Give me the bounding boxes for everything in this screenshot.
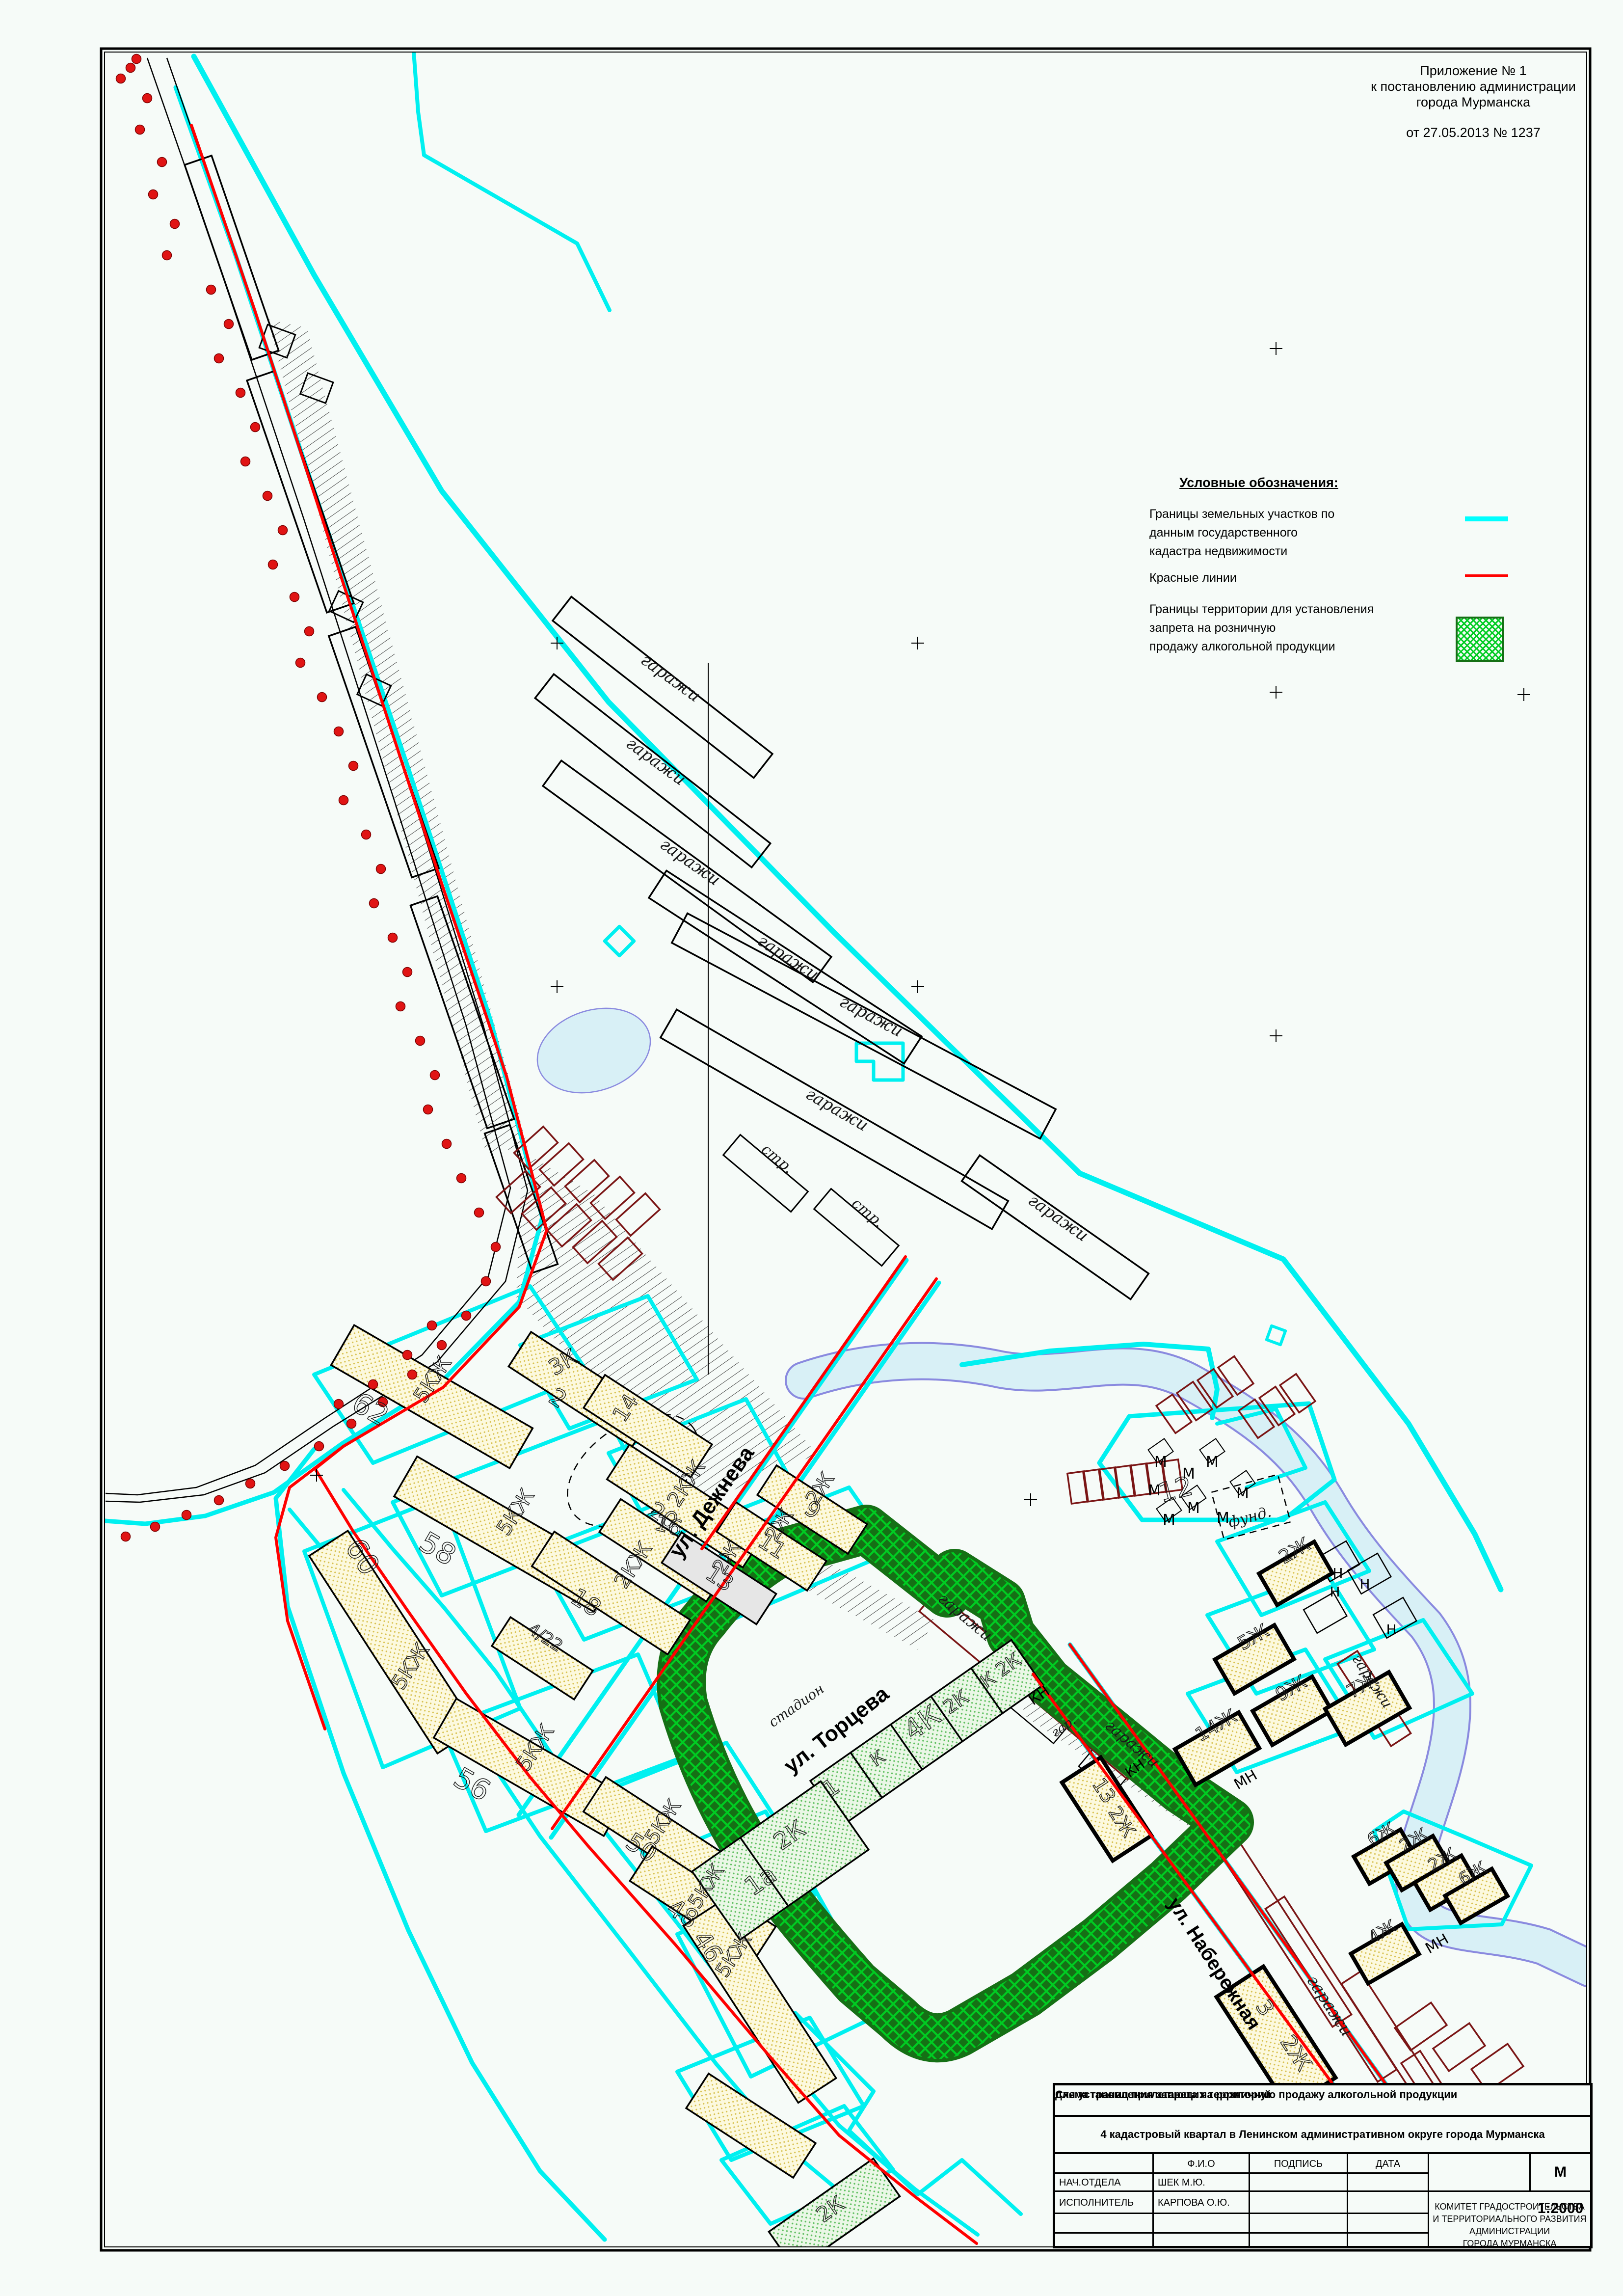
row1-role: НАЧ.ОТДЕЛА [1055, 2174, 1154, 2192]
committee-name: КОМИТЕТ ГРАДОСТРОИТЕЛЬСТВА И ТЕРРИТОРИАЛ… [1429, 2192, 1590, 2248]
appendix-line2: к постановлению администрации [1346, 79, 1601, 94]
row1-sign [1250, 2174, 1348, 2192]
title-block: Схема границ прилегающих территорий для … [1053, 2083, 1593, 2248]
svg-text:гаражи: гаражи [656, 834, 724, 890]
svg-text:ул. Набережная: ул. Набережная [1164, 1893, 1265, 2033]
svg-text:гаражи: гаражи [802, 1084, 872, 1135]
pond [526, 995, 661, 1107]
legend-title: Условные обозначения: [1153, 475, 1364, 490]
drawing-sheet: ул. Дежневаул. Торцеваул. Набережная625К… [0, 0, 1623, 2296]
row4-date [1348, 2234, 1429, 2248]
appendix-note: Приложение № 1 к постановлению администр… [1346, 63, 1601, 140]
row3-name [1154, 2214, 1250, 2234]
title-line2: для установления запрета на розничную пр… [1055, 2088, 1457, 2101]
row2-name: КАРПОВА О.Ю. [1154, 2192, 1250, 2214]
row2-role: ИСПОЛНИТЕЛЬ [1055, 2192, 1154, 2214]
legend-swatch-cadastre-line [1465, 516, 1508, 521]
svg-text:Н: Н [1332, 1565, 1343, 1581]
svg-text:М: М [1163, 1512, 1175, 1529]
appendix-date: от 27.05.2013 № 1237 [1346, 125, 1601, 140]
legend-item-ban: Границы территории для установления запр… [1149, 600, 1444, 656]
svg-text:фунд.: фунд. [1226, 1503, 1273, 1531]
svg-text:М: М [1154, 1454, 1167, 1471]
cell-empty-hd [1055, 2154, 1154, 2174]
svg-text:Н: Н [1359, 1576, 1370, 1592]
svg-text:гаражи: гаражи [622, 733, 690, 790]
svg-text:стр.: стр. [758, 1141, 797, 1177]
svg-text:М: М [1206, 1454, 1219, 1471]
row4-name [1154, 2234, 1250, 2248]
legend-swatch-red-line [1465, 574, 1508, 577]
row1-date [1348, 2174, 1429, 2192]
row4-role [1055, 2234, 1154, 2248]
col-sign: ПОДПИСЬ [1250, 2154, 1348, 2174]
svg-text:М: М [1236, 1485, 1249, 1502]
legend-item-redlines: Красные линии [1149, 568, 1444, 587]
svg-text:Н: Н [1330, 1584, 1340, 1600]
appendix-line1: Приложение № 1 [1346, 63, 1601, 79]
row3-role [1055, 2214, 1154, 2234]
svg-text:гаражи: гаражи [754, 931, 822, 985]
row2-date [1348, 2192, 1429, 2214]
svg-text:гаражи: гаражи [836, 992, 906, 1041]
row3-sign [1250, 2214, 1348, 2234]
svg-text:гаражи: гаражи [1024, 1190, 1092, 1245]
trees [116, 54, 501, 1541]
col-fio: Ф.И.О [1154, 2154, 1250, 2174]
cell-blank [1429, 2154, 1531, 2192]
svg-text:стр.: стр. [849, 1195, 887, 1231]
svg-text:М: М [1187, 1500, 1200, 1517]
svg-text:Н: Н [1386, 1621, 1396, 1638]
svg-text:М: М [1148, 1482, 1161, 1499]
svg-text:гаражи: гаражи [637, 650, 704, 706]
row3-date [1348, 2214, 1429, 2234]
row2-sign [1250, 2192, 1348, 2214]
title-block-subtitle: 4 кадастровый квартал в Ленинском админи… [1055, 2117, 1590, 2154]
svg-text:стадион: стадион [766, 1680, 827, 1730]
title-block-title: Схема границ прилегающих территорий для … [1055, 2085, 1590, 2117]
legend-swatch-ban-hatch [1456, 617, 1504, 662]
svg-text:М: М [1182, 1465, 1195, 1483]
appendix-line3: города Мурманска [1346, 94, 1601, 110]
map-scale: М 1:2000 [1531, 2154, 1590, 2192]
row4-sign [1250, 2234, 1348, 2248]
cadastral-map: ул. Дежневаул. Торцеваул. Набережная625К… [0, 0, 1623, 2296]
row1-name: ШЕК М.Ю. [1154, 2174, 1250, 2192]
col-date: ДАТА [1348, 2154, 1429, 2174]
legend-item-cadastre: Границы земельных участков по данным гос… [1149, 505, 1444, 561]
